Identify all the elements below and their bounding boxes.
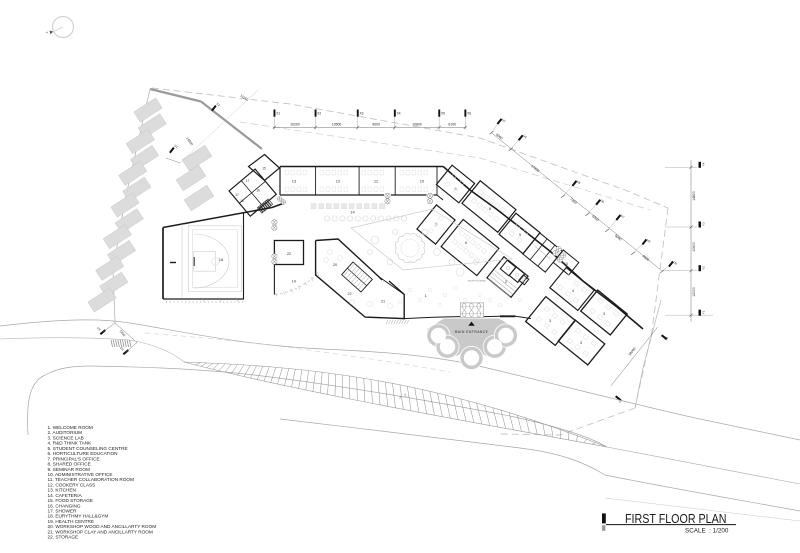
svg-text:2: 2: [505, 280, 507, 284]
svg-text:N: N: [45, 30, 49, 35]
svg-text:10: 10: [420, 179, 425, 184]
svg-text:6100: 6100: [448, 123, 456, 127]
svg-text:22: 22: [287, 252, 291, 256]
svg-text:22: 22: [347, 292, 351, 296]
svg-text:X6: X6: [467, 112, 471, 116]
svg-text:U1: U1: [96, 326, 102, 332]
svg-text:20: 20: [333, 263, 337, 267]
svg-text:19: 19: [292, 280, 296, 284]
svg-text:17200: 17200: [530, 164, 540, 173]
svg-text:X4: X4: [397, 112, 401, 116]
svg-text:X3: X3: [360, 112, 364, 116]
svg-text:10800: 10800: [412, 123, 422, 127]
svg-text:4: 4: [572, 289, 574, 293]
svg-text:21: 21: [381, 300, 385, 304]
svg-text:17: 17: [235, 193, 239, 197]
svg-text:3: 3: [603, 312, 605, 316]
svg-text:U6: U6: [600, 198, 606, 204]
svg-text:3: 3: [580, 341, 582, 345]
svg-text:3: 3: [549, 319, 551, 323]
svg-text:9000: 9000: [372, 123, 380, 127]
svg-text:9000: 9000: [642, 254, 650, 262]
svg-text:U7: U7: [620, 214, 626, 220]
svg-text:22. STORAGE: 22. STORAGE: [48, 535, 79, 540]
svg-text:16: 16: [240, 199, 244, 203]
svg-text:11150: 11150: [239, 94, 249, 103]
svg-text:14800: 14800: [692, 191, 696, 201]
svg-text:RECEPTION AREA: RECEPTION AREA: [468, 280, 486, 283]
svg-text:7300: 7300: [569, 197, 577, 205]
svg-text:7200: 7200: [118, 329, 126, 337]
svg-text:MAIN ENTRANCE: MAIN ENTRANCE: [455, 330, 489, 334]
svg-text:X5: X5: [441, 112, 445, 116]
svg-text:8: 8: [489, 207, 491, 211]
svg-text:18: 18: [219, 257, 224, 262]
svg-text:13: 13: [292, 179, 297, 184]
svg-text:FIRST FLOOR PLAN: FIRST FLOOR PLAN: [625, 512, 727, 526]
svg-text:10: 10: [564, 262, 568, 266]
svg-text:15: 15: [262, 167, 266, 171]
svg-text:Y1: Y1: [702, 310, 706, 314]
svg-text:U8: U8: [646, 238, 652, 244]
svg-text:U3: U3: [501, 118, 507, 124]
svg-text:12: 12: [336, 179, 341, 184]
svg-text:Y0: Y0: [664, 336, 670, 342]
svg-text:17: 17: [246, 179, 250, 183]
svg-text:14800: 14800: [185, 136, 194, 146]
svg-text:16: 16: [256, 189, 260, 193]
svg-text:5: 5: [519, 233, 521, 237]
svg-text:U5: U5: [576, 179, 582, 185]
svg-text:U9: U9: [672, 260, 678, 266]
svg-text:14: 14: [350, 210, 355, 215]
svg-text:11: 11: [374, 179, 379, 184]
svg-text:Y3: Y3: [702, 222, 706, 226]
svg-text:SCALE : 1/200: SCALE : 1/200: [685, 527, 729, 534]
svg-text:10600: 10600: [692, 242, 696, 252]
svg-text:U4: U4: [522, 134, 528, 140]
svg-text:12000: 12000: [692, 287, 696, 297]
svg-text:Y4: Y4: [702, 162, 706, 166]
svg-text:X2: X2: [317, 112, 321, 116]
svg-text:1: 1: [425, 293, 428, 298]
svg-text:9: 9: [454, 187, 456, 191]
svg-text:10500: 10500: [332, 123, 342, 127]
svg-text:Y2: Y2: [702, 266, 706, 270]
svg-text:6200: 6200: [591, 214, 599, 222]
svg-text:10200: 10200: [290, 123, 300, 127]
svg-text:6: 6: [465, 241, 467, 245]
svg-text:9000: 9000: [614, 234, 622, 242]
svg-text:X1: X1: [276, 112, 280, 116]
